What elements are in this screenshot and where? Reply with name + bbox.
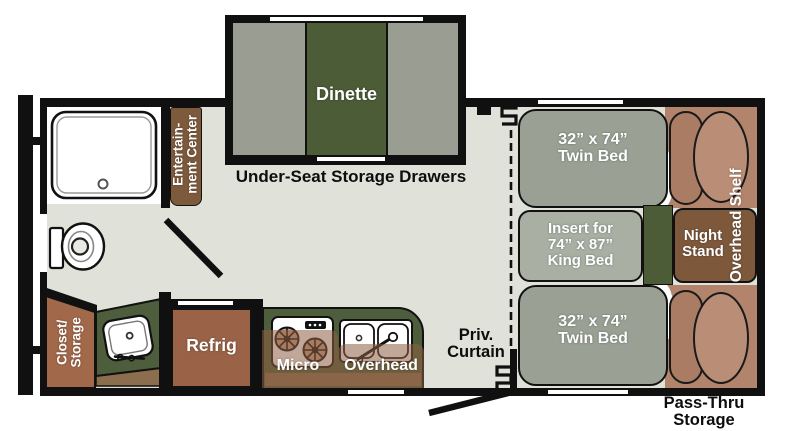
entry-door-icon	[429, 391, 516, 413]
pass-thru-storage-label: Pass-ThruStorage	[640, 395, 768, 430]
king-insert-label: Insert for74” x 87”King Bed	[518, 221, 643, 269]
dinette-label: Dinette	[305, 85, 388, 104]
entertainment-center-label: Entertain-ment Center	[172, 104, 201, 204]
curtain-symbol-top	[502, 103, 516, 124]
refrig-label: Refrig	[171, 336, 252, 355]
under-seat-storage-label: Under-Seat Storage Drawers	[226, 168, 476, 186]
micro-label: Micro	[258, 358, 338, 375]
rv-floor-plan: Dinette Under-Seat Storage Drawers Enter…	[0, 0, 792, 431]
overhead-label: Overhead	[336, 358, 426, 375]
closet-storage-label: Closet/Storage	[56, 296, 85, 388]
overhead-shelf-label: Overhead Shelf	[729, 119, 745, 331]
privacy-curtain-label: Priv.Curtain	[438, 327, 514, 362]
curtain-symbol-bottom	[497, 367, 511, 388]
twin-bed-top-label: 32” x 74”Twin Bed	[518, 132, 668, 166]
twin-bed-bottom-label: 32” x 74”Twin Bed	[518, 314, 668, 348]
bathroom-door-icon	[166, 220, 221, 276]
